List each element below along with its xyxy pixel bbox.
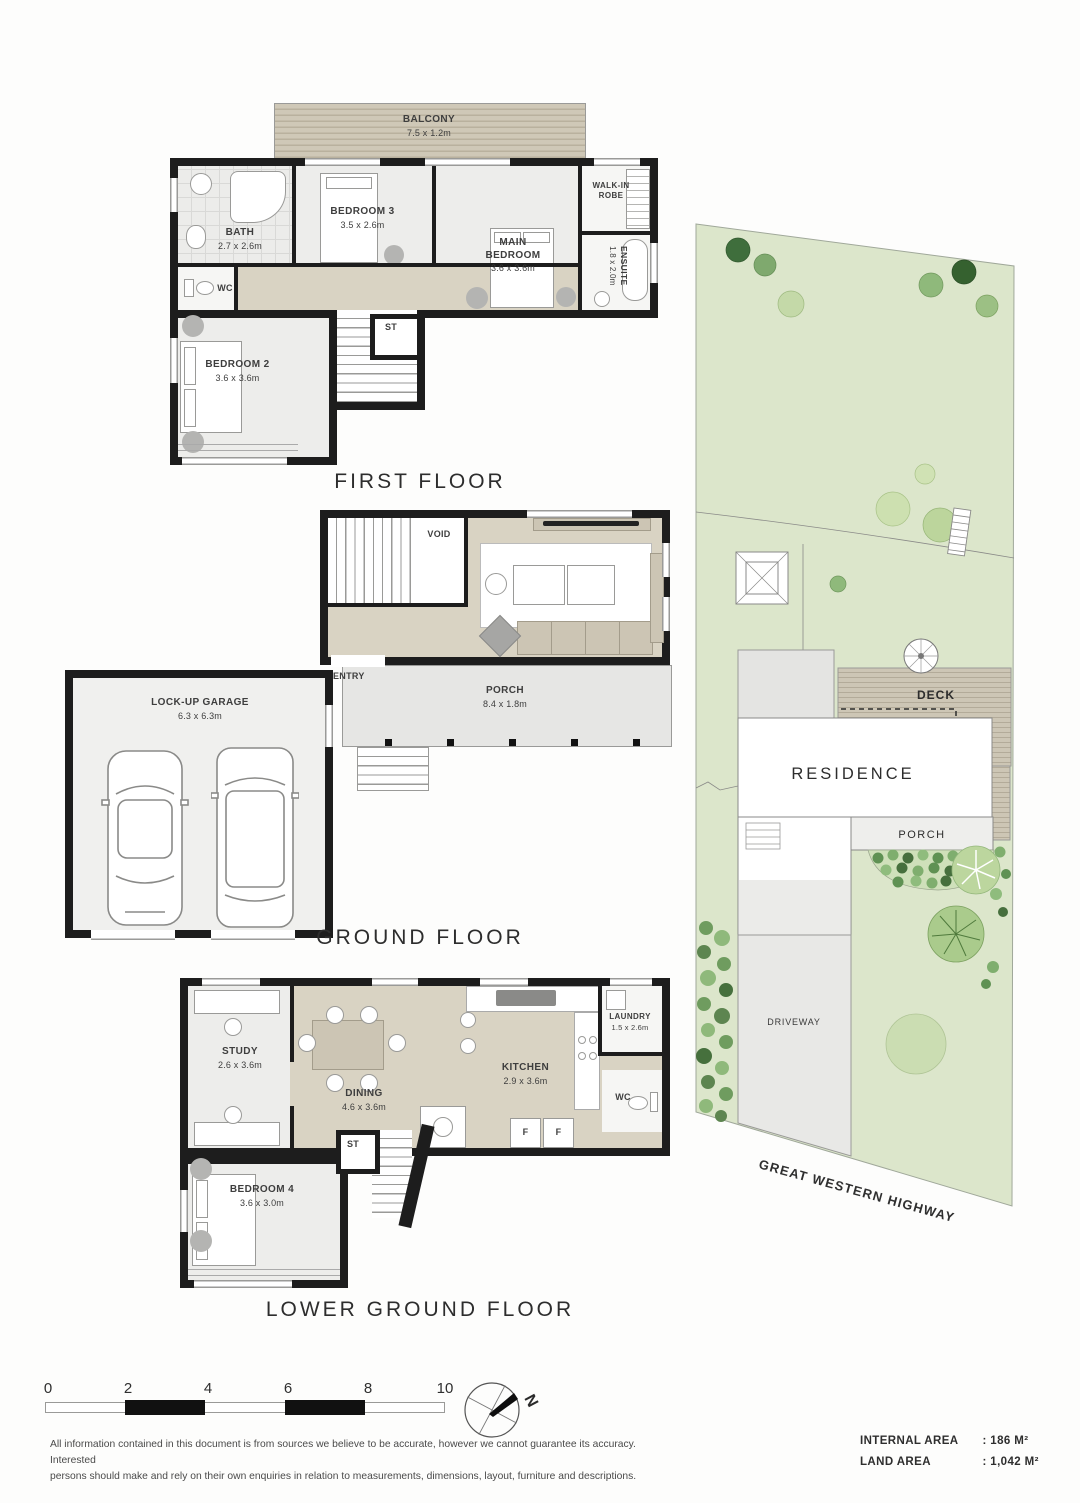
chair: [388, 1034, 406, 1052]
fridge-label: F: [543, 1127, 574, 1137]
kitchen-sink: [496, 990, 556, 1006]
deck-boards: [188, 1264, 340, 1280]
entry-label: ENTRY: [333, 671, 383, 681]
kitchen-label: KITCHEN 2.9 x 3.6m: [468, 1062, 583, 1087]
deck-label: DECK: [917, 688, 955, 702]
scale-bar: 0 2 4 6 8 10: [45, 1380, 465, 1422]
room-name: STUDY: [192, 1046, 288, 1059]
window: [425, 158, 510, 166]
st-label: ST: [370, 322, 412, 332]
wall: [464, 518, 468, 607]
laundry-label: LAUNDRY 1.5 x 2.6m: [594, 1012, 666, 1032]
stool: [460, 1038, 476, 1054]
floorplan-page: BALCONY 7.5 x 1.2m: [0, 0, 1080, 1503]
garage-side-door: [325, 705, 333, 747]
room-dims: 6.3 x 6.3m: [125, 711, 275, 722]
laundry-sink: [606, 990, 626, 1010]
porch-post: [633, 739, 640, 746]
porch-steps: [357, 747, 429, 791]
round-table: [485, 573, 507, 595]
driveway-label: DRIVEWAY: [767, 1017, 820, 1027]
room-name: LOCK-UP GARAGE: [125, 697, 275, 710]
window: [170, 178, 178, 212]
ground-floor-plan: VOID ENTRY PORCH 8.4 x 1.8m LOCK-UP GARA…: [65, 505, 680, 975]
site-plan: DECK RESIDENCE PORCH DRIVEWAY GREAT WEST…: [688, 222, 1023, 1234]
window: [594, 158, 640, 166]
wc-label: WC: [608, 1092, 638, 1102]
porch-post: [385, 739, 392, 746]
window: [662, 543, 670, 577]
lower-ground-floor-title: LOWER GROUND FLOOR: [197, 1298, 643, 1322]
porch-post: [509, 739, 516, 746]
room-name: BEDROOM 3: [305, 206, 420, 219]
study-label: STUDY 2.6 x 3.6m: [192, 1046, 288, 1071]
garage-label: LOCK-UP GARAGE 6.3 x 6.3m: [125, 697, 275, 722]
roof-section: [738, 650, 834, 718]
window: [527, 510, 632, 518]
chair: [298, 1034, 316, 1052]
stove-burner: [578, 1036, 586, 1044]
first-floor-title: FIRST FLOOR: [250, 470, 590, 494]
main-bedroom-label: MAIN BEDROOM 3.6 x 3.6m: [475, 237, 551, 274]
room-dims: 1.8 x 2.0m: [607, 226, 617, 306]
room-dims: 3.6 x 3.6m: [190, 373, 285, 384]
desk: [194, 1122, 280, 1146]
wall: [290, 986, 294, 1062]
room-name: MAIN BEDROOM: [475, 237, 551, 262]
room-dims: 2.6 x 3.6m: [192, 1060, 288, 1071]
lower-ground-floor-plan: F F ST STUDY 2.6 x 3.6m DINING 4.: [180, 978, 675, 1308]
compass-needle: [489, 1393, 518, 1417]
wall: [290, 1106, 294, 1148]
window: [170, 338, 178, 383]
internal-area-value: : 186 M²: [982, 1432, 1028, 1452]
wall: [602, 1052, 662, 1056]
wall: [328, 603, 468, 607]
window: [180, 1190, 188, 1232]
room-dims: 3.6 x 3.0m: [206, 1198, 318, 1209]
site-porch-label: PORCH: [898, 829, 945, 841]
room-dims: 3.6 x 3.6m: [475, 263, 551, 274]
bed2-pillow: [184, 389, 196, 427]
bed3-rug: [384, 245, 404, 265]
internal-area-label: INTERNAL AREA: [860, 1432, 978, 1452]
wc-toilet-tank: [650, 1092, 658, 1112]
window: [610, 978, 652, 986]
room-name: KITCHEN: [468, 1062, 583, 1075]
heater-circle: [433, 1117, 453, 1137]
entry-door-opening: [331, 655, 385, 667]
disclaimer: All information contained in this docume…: [50, 1437, 668, 1485]
store-closet: [370, 314, 422, 360]
scale-tick: 10: [432, 1380, 458, 1397]
sofa: [517, 621, 653, 655]
wc-toilet-tank: [184, 279, 194, 297]
coffee-table: [513, 565, 565, 605]
stove-burner: [578, 1052, 586, 1060]
side-table: [182, 315, 204, 337]
porch-label: PORCH 8.4 x 1.8m: [420, 685, 590, 710]
compass: N: [456, 1372, 546, 1447]
land-area-value: : 1,042 M²: [982, 1453, 1038, 1473]
room-name: LAUNDRY: [594, 1012, 666, 1022]
wall: [292, 166, 296, 267]
room-dims: 2.7 x 2.6m: [190, 241, 290, 252]
side-table: [190, 1230, 212, 1252]
area-summary: INTERNAL AREA : 186 M² LAND AREA : 1,042…: [860, 1431, 1060, 1472]
side-table: [466, 287, 488, 309]
room-name: BEDROOM 4: [206, 1184, 318, 1197]
room-name: ENSUITE: [618, 226, 629, 306]
balcony-label: BALCONY 7.5 x 1.2m: [274, 114, 584, 139]
big-tree: [928, 906, 984, 962]
residence-patio: [739, 880, 850, 935]
room-name: BATH: [190, 227, 290, 240]
fridge-label: F: [510, 1127, 541, 1137]
window: [202, 978, 260, 986]
bed3-pillow: [326, 177, 372, 189]
wall: [337, 402, 425, 410]
deck-boards: [178, 439, 298, 455]
wc-label: WC: [210, 283, 240, 293]
stove-burner: [589, 1036, 597, 1044]
internal-area-row: INTERNAL AREA : 186 M²: [860, 1431, 1060, 1452]
car-suv: [211, 745, 299, 935]
feature-tree: [952, 846, 1000, 894]
first-floor-plan: BALCONY 7.5 x 1.2m: [170, 103, 670, 468]
ensuite-label: ENSUITE 1.8 x 2.0m: [607, 226, 629, 306]
scale-tick: 0: [35, 1380, 61, 1397]
side-table: [556, 287, 576, 307]
chair: [224, 1106, 242, 1124]
land-area-row: LAND AREA : 1,042 M²: [860, 1452, 1060, 1473]
window: [662, 597, 670, 631]
disclaimer-line2: persons should make and rely on their ow…: [50, 1471, 636, 1482]
bath-label: BATH 2.7 x 2.6m: [190, 227, 290, 252]
residence-label: RESIDENCE: [791, 765, 914, 783]
wall: [432, 166, 436, 267]
window: [480, 978, 528, 986]
coffee-table: [567, 565, 615, 605]
side-table: [190, 1158, 212, 1180]
car-sedan: [101, 748, 189, 933]
st-label: ST: [336, 1139, 370, 1149]
bedroom4-label: BEDROOM 4 3.6 x 3.0m: [206, 1184, 318, 1209]
faded-tree: [886, 1014, 946, 1074]
compass-north-label: N: [520, 1392, 540, 1410]
residence-steps: [746, 823, 780, 849]
wall: [578, 166, 582, 310]
scale-tick: 8: [355, 1380, 381, 1397]
room-name: BALCONY: [274, 114, 584, 127]
porch-post: [571, 739, 578, 746]
chair: [224, 1018, 242, 1036]
scale-tick: 2: [115, 1380, 141, 1397]
room-dims: 7.5 x 1.2m: [274, 128, 584, 139]
stairs: [328, 518, 412, 603]
gazebo: [736, 552, 788, 604]
room-name: BEDROOM 2: [190, 359, 285, 372]
dining-label: DINING 4.6 x 3.6m: [308, 1088, 420, 1113]
driveway: [738, 935, 851, 1156]
garage-door-opening: [91, 930, 175, 940]
dining-table: [312, 1020, 384, 1070]
disclaimer-line1: All information contained in this docume…: [50, 1439, 636, 1466]
room-name: WALK-IN ROBE: [586, 181, 636, 201]
window: [194, 1280, 292, 1288]
room-dims: 3.5 x 2.6m: [305, 220, 420, 231]
room-name: DINING: [308, 1088, 420, 1101]
store-closet: [336, 1130, 380, 1174]
spiral-stair: [904, 639, 938, 673]
chair: [326, 1006, 344, 1024]
land-area-label: LAND AREA: [860, 1453, 978, 1473]
tv: [543, 521, 639, 526]
porch-post: [447, 739, 454, 746]
bath-sink: [190, 173, 212, 195]
scale-segment: [125, 1400, 205, 1415]
scale-tick: 6: [275, 1380, 301, 1397]
window: [372, 978, 418, 986]
room-name: PORCH: [420, 685, 590, 698]
ground-floor-title: GROUND FLOOR: [250, 926, 590, 950]
stool: [460, 1012, 476, 1028]
window: [650, 243, 658, 283]
walkin-robe-label: WALK-IN ROBE: [586, 181, 636, 201]
scale-segment: [285, 1400, 365, 1415]
void-label: VOID: [417, 529, 461, 539]
window: [305, 158, 380, 166]
window: [182, 457, 287, 465]
bedroom2-label: BEDROOM 2 3.6 x 3.6m: [190, 359, 285, 384]
stove-burner: [589, 1052, 597, 1060]
chair: [360, 1006, 378, 1024]
scale-strip: [45, 1402, 445, 1413]
room-dims: 1.5 x 2.6m: [594, 1023, 666, 1032]
room-dims: 8.4 x 1.8m: [420, 699, 590, 710]
bedroom3-label: BEDROOM 3 3.5 x 2.6m: [305, 206, 420, 231]
scale-tick: 4: [195, 1380, 221, 1397]
room-dims: 2.9 x 3.6m: [468, 1076, 583, 1087]
room-dims: 4.6 x 3.6m: [308, 1102, 420, 1113]
desk: [194, 990, 280, 1014]
